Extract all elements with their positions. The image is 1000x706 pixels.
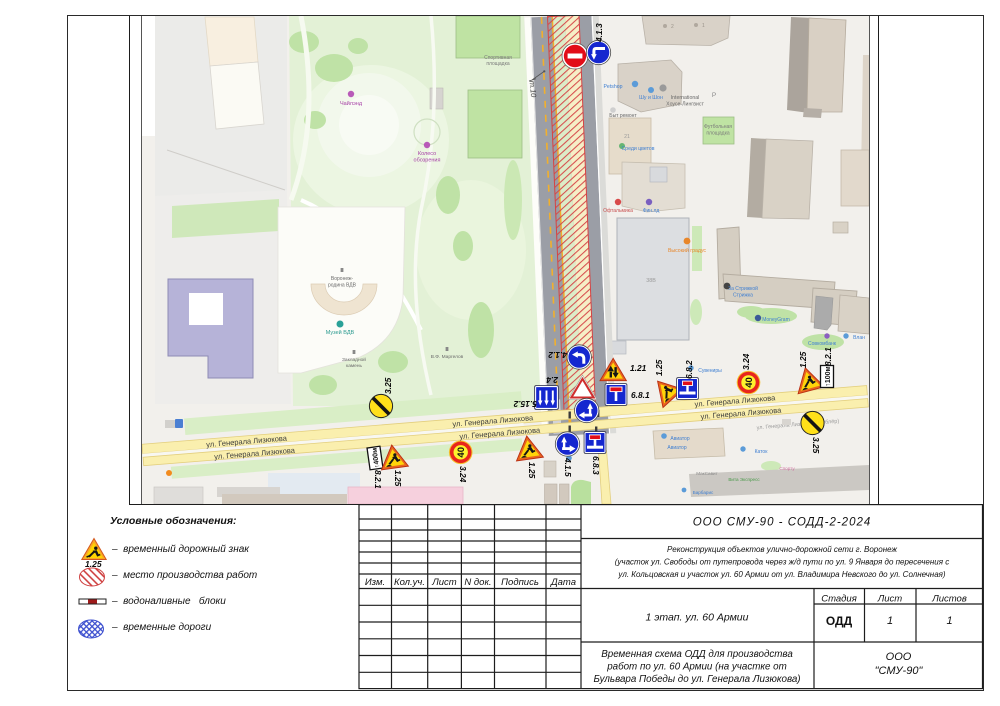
svg-text:Футбольная: Футбольная bbox=[704, 124, 732, 130]
svg-text:International: International bbox=[671, 95, 700, 101]
svg-text:Воронеж-: Воронеж- bbox=[331, 276, 354, 282]
svg-text:Быт ремонт: Быт ремонт bbox=[609, 113, 637, 119]
svg-text:"СМУ-90": "СМУ-90" bbox=[875, 665, 924, 677]
svg-text:Чайлэнд: Чайлэнд bbox=[340, 100, 363, 107]
svg-text:Стадия: Стадия bbox=[821, 594, 857, 605]
svg-text:P: P bbox=[712, 92, 716, 99]
svg-text:родина ВДВ: родина ВДВ bbox=[328, 283, 357, 289]
svg-text:1: 1 bbox=[887, 615, 893, 627]
svg-text:Офтальмика: Офтальмика bbox=[603, 208, 633, 214]
svg-text:Временная схема ОДД для произв: Временная схема ОДД для производства bbox=[601, 649, 793, 660]
svg-text:Кол.уч.: Кол.уч. bbox=[394, 577, 425, 588]
svg-text:В.Ф. Маргелов: В.Ф. Маргелов bbox=[431, 354, 464, 360]
svg-text:40: 40 bbox=[456, 447, 467, 458]
svg-text:1: 1 bbox=[946, 615, 952, 627]
svg-text:3.24: 3.24 bbox=[741, 353, 751, 370]
svg-text:т.10: т.10 bbox=[528, 80, 539, 98]
svg-text:1.25: 1.25 bbox=[798, 351, 808, 368]
svg-text:Высокий градус: Высокий градус bbox=[668, 247, 706, 254]
svg-text:2: 2 bbox=[671, 24, 674, 30]
svg-text:6.8.2: 6.8.2 bbox=[684, 360, 694, 379]
svg-text:(участок ул. Свободы от путепр: (участок ул. Свободы от путепровода чере… bbox=[615, 558, 949, 567]
svg-text:8.2.1: 8.2.1 bbox=[373, 470, 383, 489]
svg-text:Листов: Листов bbox=[931, 594, 967, 605]
svg-text:Спорту: Спорту bbox=[779, 466, 795, 471]
svg-text:Изм.: Изм. bbox=[365, 577, 385, 588]
svg-text:Дата: Дата bbox=[550, 577, 576, 588]
svg-text:↑100м: ↑100м bbox=[825, 366, 832, 386]
svg-text:Шу и Шон: Шу и Шон bbox=[639, 95, 663, 101]
svg-text:обозрения: обозрения bbox=[414, 158, 441, 164]
svg-text:Лист: Лист bbox=[877, 594, 903, 605]
svg-text:Авиатор: Авиатор bbox=[667, 445, 686, 451]
svg-text:38В: 38В bbox=[646, 278, 656, 284]
svg-text:8.2.1: 8.2.1 bbox=[823, 347, 833, 366]
svg-text:Стрижка: Стрижка bbox=[733, 293, 753, 299]
svg-text:МакСавит: МакСавит bbox=[696, 471, 718, 476]
svg-text:ООО СМУ-90 - СОДД-2-2024: ООО СМУ-90 - СОДД-2-2024 bbox=[693, 517, 872, 529]
svg-text:ООО: ООО bbox=[886, 651, 912, 663]
svg-text:камень: камень bbox=[346, 364, 362, 369]
svg-text:Хоусе-Лингвист: Хоусе-Лингвист bbox=[666, 102, 704, 108]
svg-text:Закладной: Закладной bbox=[342, 356, 366, 363]
svg-text:Авиатор: Авиатор bbox=[670, 436, 689, 442]
svg-text:40: 40 bbox=[744, 377, 755, 388]
svg-text:3.24: 3.24 bbox=[458, 466, 468, 483]
svg-text:4.1.3: 4.1.3 bbox=[594, 23, 604, 43]
svg-text:Бульвара Победы до ул. Генерал: Бульвара Победы до ул. Генерала Лизюкова… bbox=[593, 674, 800, 685]
svg-text:Влан: Влан bbox=[853, 335, 865, 341]
svg-text:Фин.лд: Фин.лд bbox=[643, 208, 660, 214]
svg-text:Подпись: Подпись bbox=[501, 577, 539, 588]
svg-text:5.15.2: 5.15.2 bbox=[513, 399, 537, 409]
svg-text:Колесо: Колесо bbox=[418, 151, 436, 157]
svg-text:Музей ВДВ: Музей ВДВ bbox=[326, 329, 355, 336]
svg-text:21: 21 bbox=[624, 134, 630, 140]
svg-text:3.25: 3.25 bbox=[383, 377, 393, 394]
svg-text:6.8.3: 6.8.3 bbox=[591, 456, 601, 475]
svg-text:ОДД: ОДД bbox=[826, 614, 853, 628]
svg-text:ул. Кольцовская и участок ул.: ул. Кольцовская и участок ул. 60 Армии о… bbox=[617, 570, 945, 579]
svg-text:1.21: 1.21 bbox=[630, 363, 647, 373]
svg-text:площадка: площадка bbox=[486, 61, 510, 67]
svg-text:1: 1 bbox=[702, 23, 705, 29]
svg-text:Вита Экспресс: Вита Экспресс bbox=[728, 477, 760, 482]
svg-text:Совкомбанк: Совкомбанк bbox=[808, 341, 837, 347]
svg-text:1.25: 1.25 bbox=[393, 470, 403, 487]
svg-text:Каток: Каток bbox=[755, 449, 769, 455]
svg-text:Реконструкция объектов улично-: Реконструкция объектов улично-дорожной с… bbox=[667, 545, 897, 554]
svg-text:Petshop: Petshop bbox=[603, 84, 622, 90]
svg-text:Среди цветов: Среди цветов bbox=[621, 146, 654, 152]
svg-text:2.4: 2.4 bbox=[546, 375, 559, 385]
svg-text:4.1.5: 4.1.5 bbox=[563, 457, 573, 477]
svg-text:N док.: N док. bbox=[464, 577, 491, 588]
svg-text:работ по ул. 60 Армии (на учас: работ по ул. 60 Армии (на участке от bbox=[606, 662, 787, 673]
svg-text:1.25: 1.25 bbox=[527, 462, 537, 479]
svg-text:6.8.1: 6.8.1 bbox=[631, 390, 650, 400]
svg-text:1.25: 1.25 bbox=[654, 359, 664, 376]
svg-text:площадка: площадка bbox=[706, 131, 730, 137]
svg-text:4.1.2: 4.1.2 bbox=[548, 350, 568, 360]
svg-text:Барбарис: Барбарис bbox=[693, 490, 714, 495]
svg-text:3.25: 3.25 bbox=[811, 437, 821, 454]
svg-text:За Стрижкой: За Стрижкой bbox=[728, 285, 758, 292]
svg-text:Лист: Лист bbox=[431, 577, 457, 588]
svg-text:Сувениры: Сувениры bbox=[698, 368, 722, 374]
svg-text:1 этап. ул. 60 Армии: 1 этап. ул. 60 Армии bbox=[646, 612, 749, 624]
svg-text:MoneyGram: MoneyGram bbox=[762, 317, 790, 323]
